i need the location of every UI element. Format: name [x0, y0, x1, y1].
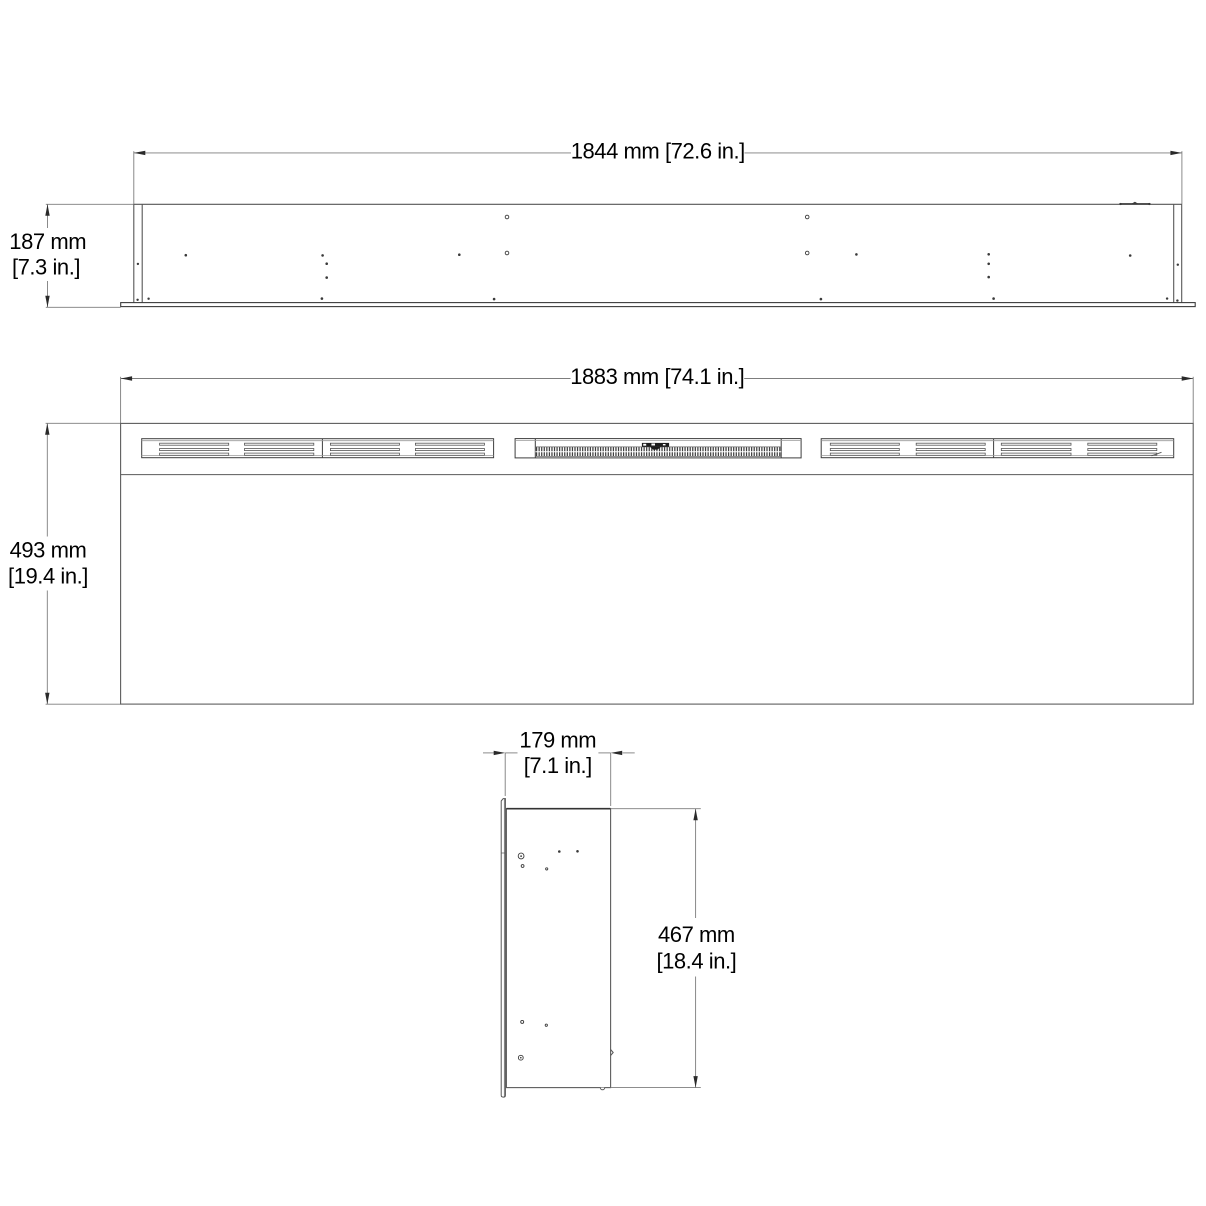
svg-text:[7.1 in.]: [7.1 in.]: [524, 753, 592, 778]
svg-text:187 mm: 187 mm: [9, 229, 86, 254]
svg-text:[19.4 in.]: [19.4 in.]: [8, 563, 88, 588]
svg-text:493 mm: 493 mm: [10, 538, 87, 563]
svg-text:467 mm: 467 mm: [658, 922, 735, 947]
svg-text:179 mm: 179 mm: [519, 727, 596, 752]
svg-text:[7.3 in.]: [7.3 in.]: [12, 254, 80, 279]
svg-text:[18.4 in.]: [18.4 in.]: [656, 948, 736, 973]
svg-text:1883 mm [74.1 in.]: 1883 mm [74.1 in.]: [570, 364, 744, 389]
svg-text:1844 mm [72.6 in.]: 1844 mm [72.6 in.]: [571, 138, 745, 163]
